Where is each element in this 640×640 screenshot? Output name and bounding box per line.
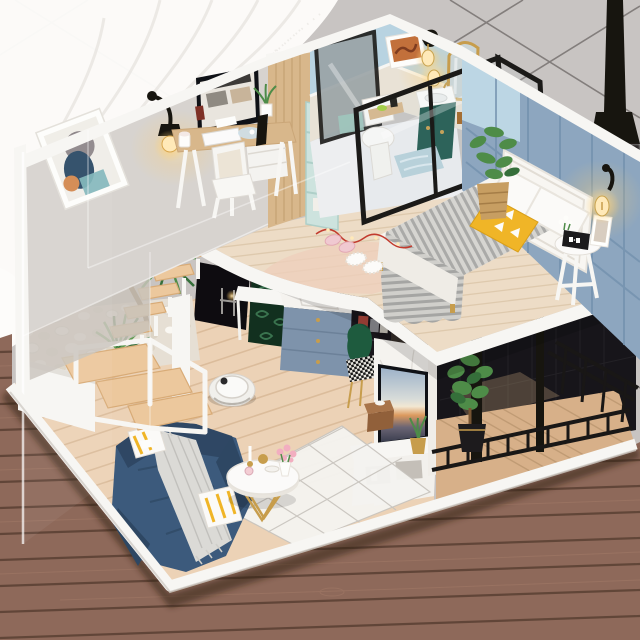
plant-pot	[458, 424, 486, 452]
desk-cup	[179, 132, 190, 148]
woven-pot	[477, 182, 509, 220]
tissue-box	[364, 400, 394, 432]
bulb-1	[422, 50, 434, 66]
bed-foot-right	[450, 304, 455, 313]
dollhouse-product-photo	[0, 0, 640, 640]
pink-teacup	[245, 467, 253, 475]
robot-sensor	[221, 378, 228, 385]
scene-canvas	[0, 0, 640, 640]
gold-teapot	[258, 454, 268, 464]
mouse	[250, 130, 255, 135]
robot-vacuum	[208, 374, 256, 407]
